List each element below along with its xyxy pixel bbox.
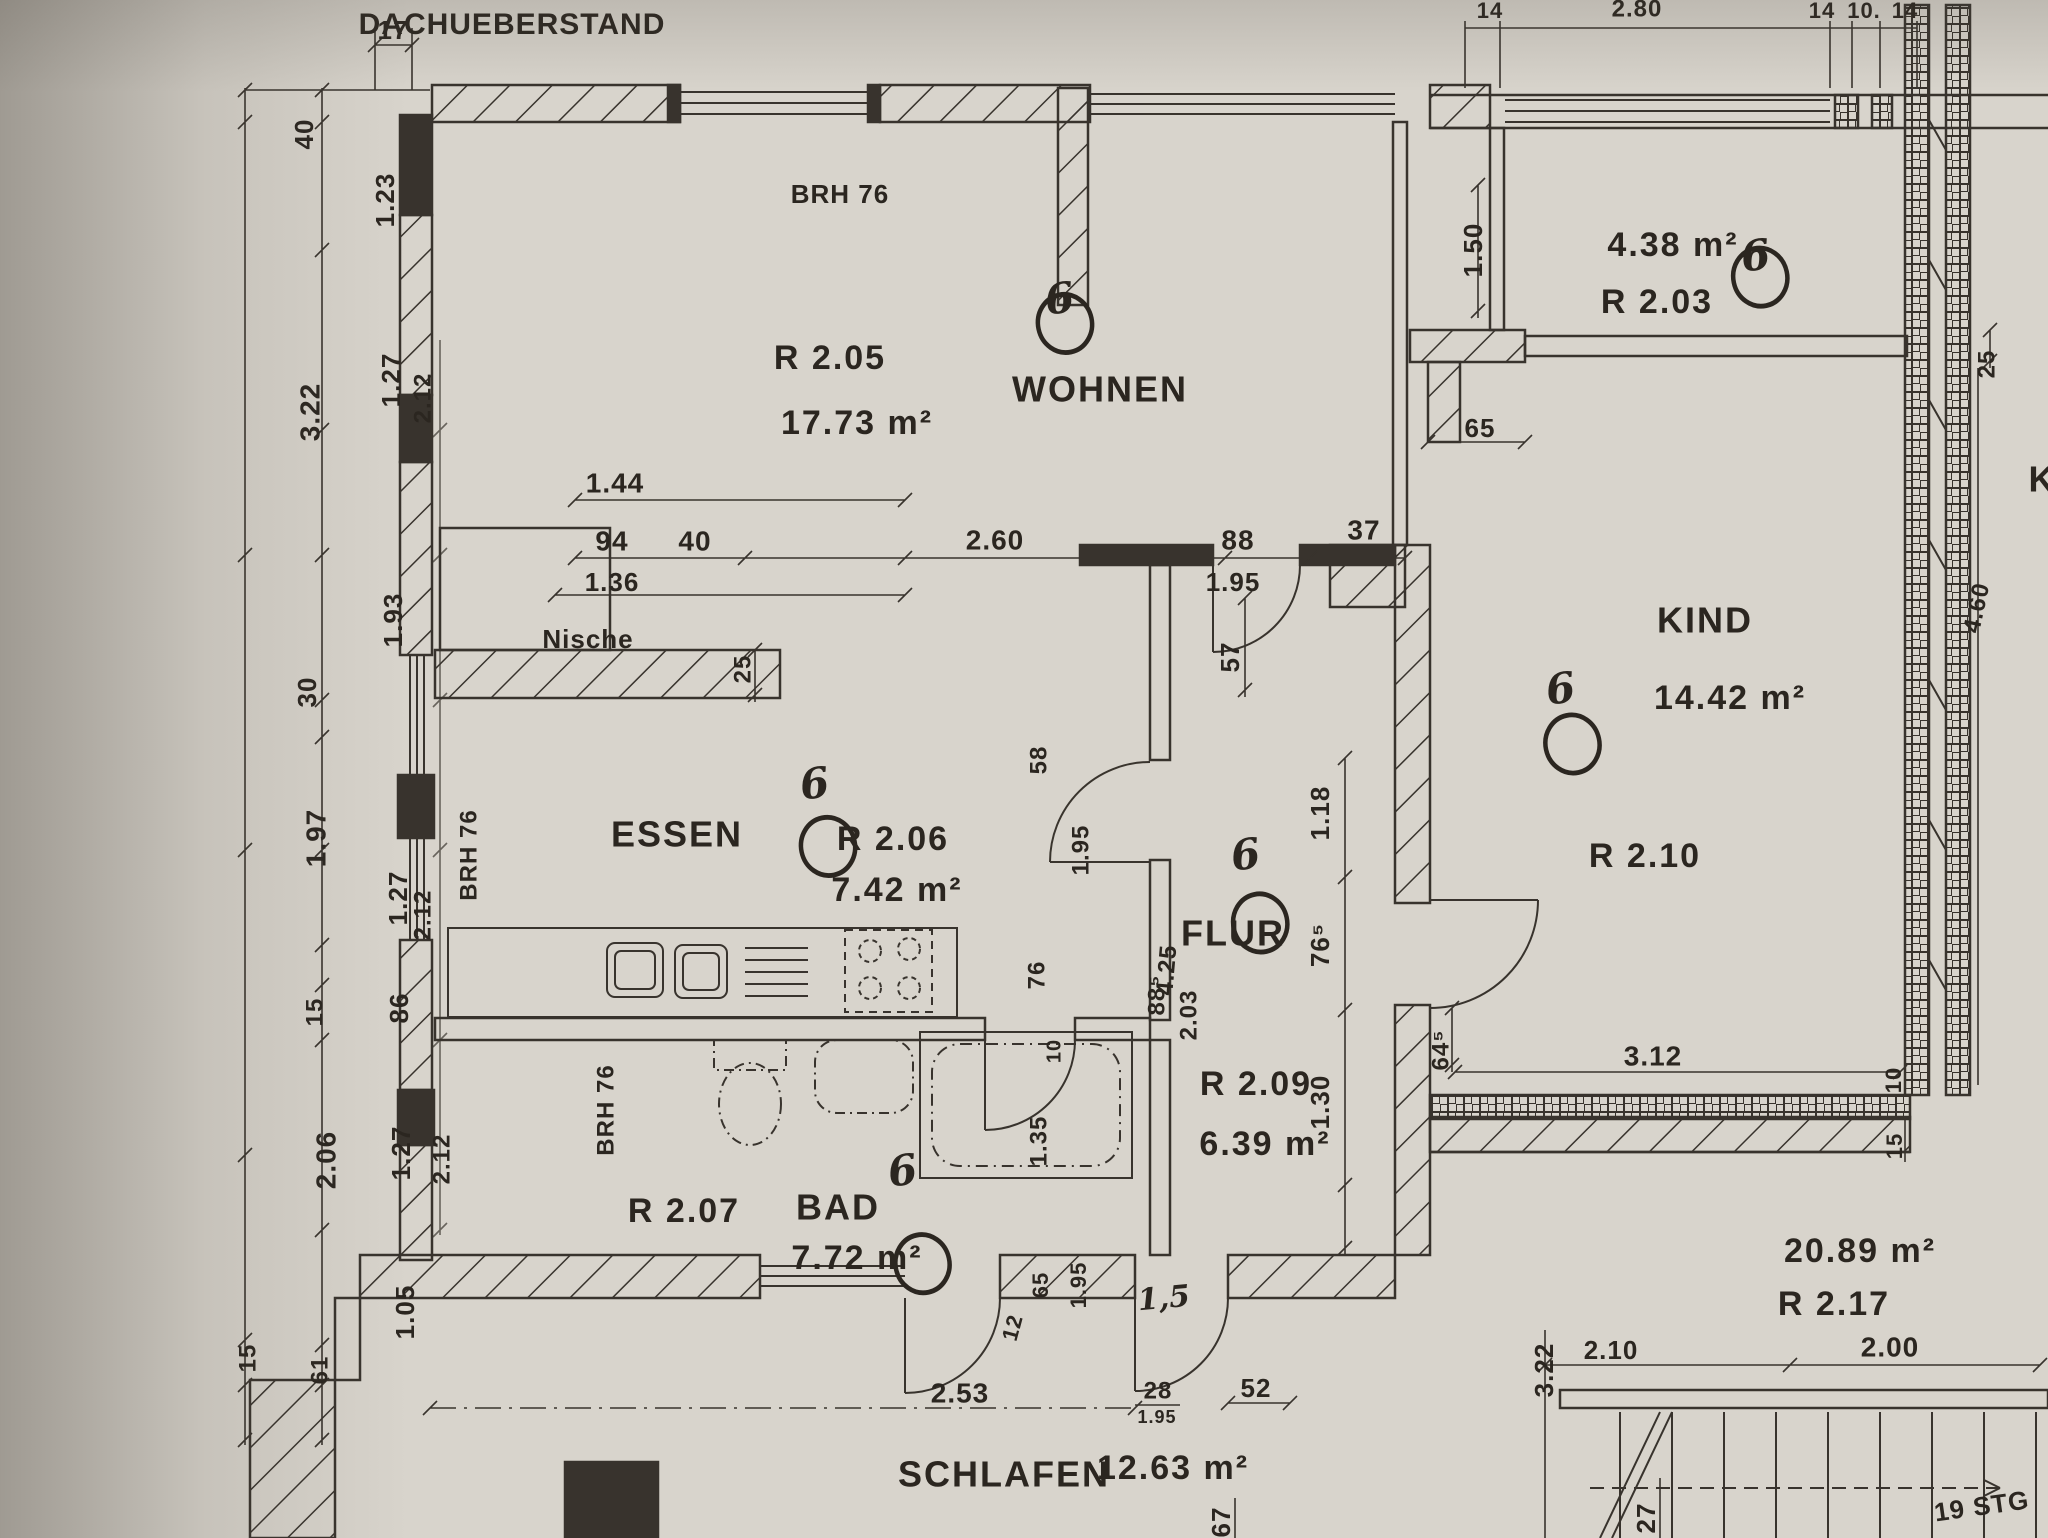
- dimension-label: 1.95: [1066, 1262, 1091, 1309]
- room-number: R 2.05: [774, 339, 886, 377]
- paper-background: [0, 0, 2048, 1538]
- schlafen-top-wall: [360, 1255, 760, 1298]
- dimension-label: 67: [1206, 1507, 1236, 1538]
- dimension-label: 1.27: [386, 1126, 416, 1181]
- dimension-label: 88: [1221, 524, 1254, 555]
- dimension-label: 76⁵: [1305, 923, 1335, 967]
- dimension-label: 14: [1892, 0, 1918, 23]
- dimension-label: 64⁵: [1427, 1030, 1454, 1071]
- dimension-label: 2.06: [310, 1131, 341, 1190]
- dimension-label: 94: [595, 525, 628, 556]
- dimension-label: 65: [1028, 1272, 1053, 1298]
- dimension-label: 2.03: [1175, 990, 1202, 1041]
- dimension-label: 65: [1465, 413, 1496, 443]
- room-name: BAD: [796, 1187, 880, 1228]
- room-name: KIND: [1657, 600, 1753, 641]
- room-area: 17.73 m²: [781, 404, 933, 442]
- room-number: R 2.09: [1200, 1065, 1312, 1103]
- dimension-label: 10: [1043, 1039, 1065, 1063]
- room-area: 14.42 m²: [1654, 679, 1806, 717]
- room-number: R 2.07: [628, 1192, 740, 1230]
- dimension-label: 2.60: [966, 524, 1025, 555]
- dimension-label: 25: [729, 655, 756, 684]
- dimension-label: 2.00: [1861, 1331, 1920, 1362]
- dimension-label: BRH 76: [592, 1064, 619, 1155]
- dimension-label: 1.95: [1137, 1407, 1176, 1427]
- dimension-label: BRH 76: [791, 179, 889, 209]
- dimension-label: 37: [1347, 514, 1380, 545]
- flur-right-wall-lower: [1395, 1005, 1430, 1255]
- dimension-label: 30: [292, 677, 322, 708]
- dimension-label: 1.27: [376, 353, 406, 408]
- dimension-label: 1.95: [1067, 825, 1094, 876]
- dimension-label: 1.93: [378, 593, 408, 648]
- room-area: 7.42 m²: [831, 871, 962, 909]
- interior-wall-nische: [435, 650, 780, 698]
- dimension-label: Nische: [542, 624, 633, 654]
- room-area: 12.63 m²: [1097, 1449, 1249, 1487]
- dimension-label: K: [2029, 459, 2048, 500]
- dimension-label: 40: [678, 525, 711, 556]
- dimension-label: 25: [1973, 350, 2000, 379]
- dimension-label: BRH 76: [455, 809, 482, 900]
- room-name: WOHNEN: [1012, 369, 1188, 410]
- dimension-label: 88⁵: [1143, 975, 1170, 1016]
- dimension-label: 2.12: [428, 1134, 455, 1185]
- dimension-label: 1.23: [370, 173, 400, 228]
- dimension-label: 57: [1215, 642, 1245, 673]
- dimension-label: 3.12: [1624, 1040, 1683, 1071]
- room-number: R 2.17: [1778, 1285, 1890, 1323]
- dimension-label: 40: [289, 119, 319, 150]
- dimension-label: 10.: [1847, 0, 1881, 23]
- dimension-label: 2.12: [409, 373, 436, 424]
- dimension-label: 2.80: [1612, 0, 1663, 22]
- kind-bottom-wall: [1430, 1117, 1910, 1152]
- flur-right-wall-upper: [1395, 545, 1430, 903]
- dimension-label: 15: [234, 1344, 261, 1373]
- dimension-label: 14: [1809, 0, 1835, 23]
- dimension-label: 52: [1241, 1373, 1272, 1403]
- room-name: ESSEN: [611, 814, 743, 855]
- floor-plan-drawing: 17DACHUEBERSTANDBRH 761.4494401.362.6088…: [0, 0, 2048, 1538]
- dimension-label: 1.50: [1458, 223, 1488, 278]
- dimension-label: 1.36: [585, 567, 640, 597]
- dimension-label: 61: [306, 1356, 333, 1385]
- dimension-label: 10: [1881, 1067, 1906, 1093]
- dimension-label: 1.44: [586, 467, 645, 498]
- room-area: 4.38 m²: [1607, 226, 1738, 264]
- dimension-label: 1.97: [300, 809, 331, 868]
- room-name: SCHLAFEN: [898, 1454, 1110, 1495]
- dimension-label: 1.05: [390, 1285, 420, 1340]
- dimension-label: DACHUEBERSTAND: [359, 8, 666, 41]
- dimension-label: 1.95: [1206, 567, 1261, 597]
- dimension-label: 2.53: [931, 1377, 990, 1408]
- right-double-wall-a: [1905, 5, 1929, 1095]
- dimension-label: 2.12: [409, 890, 436, 941]
- dimension-label: 1.18: [1305, 786, 1335, 841]
- floor-plan-photo: 17DACHUEBERSTANDBRH 761.4494401.362.6088…: [0, 0, 2048, 1538]
- dimension-label: 1.35: [1025, 1116, 1052, 1167]
- dimension-label: 3.22: [294, 383, 325, 442]
- dimension-label: 3.22: [1529, 1343, 1559, 1398]
- room-area: 6.39 m²: [1199, 1125, 1330, 1163]
- dimension-label: 15: [301, 998, 328, 1027]
- dimension-label: 27: [1631, 1503, 1661, 1534]
- dimension-label: 14: [1477, 0, 1503, 23]
- right-double-wall-b: [1946, 5, 1970, 1095]
- room-number: R 2.03: [1601, 283, 1713, 321]
- dimension-label: 58: [1025, 746, 1052, 775]
- dimension-label: 15: [1882, 1133, 1907, 1159]
- handwritten-note: 1,5: [1136, 1279, 1191, 1318]
- room-area: 20.89 m²: [1784, 1232, 1936, 1270]
- room-number: R 2.10: [1589, 837, 1701, 875]
- dimension-label: 2.10: [1584, 1335, 1639, 1365]
- dimension-label: 86: [384, 993, 414, 1024]
- dimension-label: 28: [1144, 1377, 1173, 1404]
- dimension-label: 76: [1023, 961, 1050, 990]
